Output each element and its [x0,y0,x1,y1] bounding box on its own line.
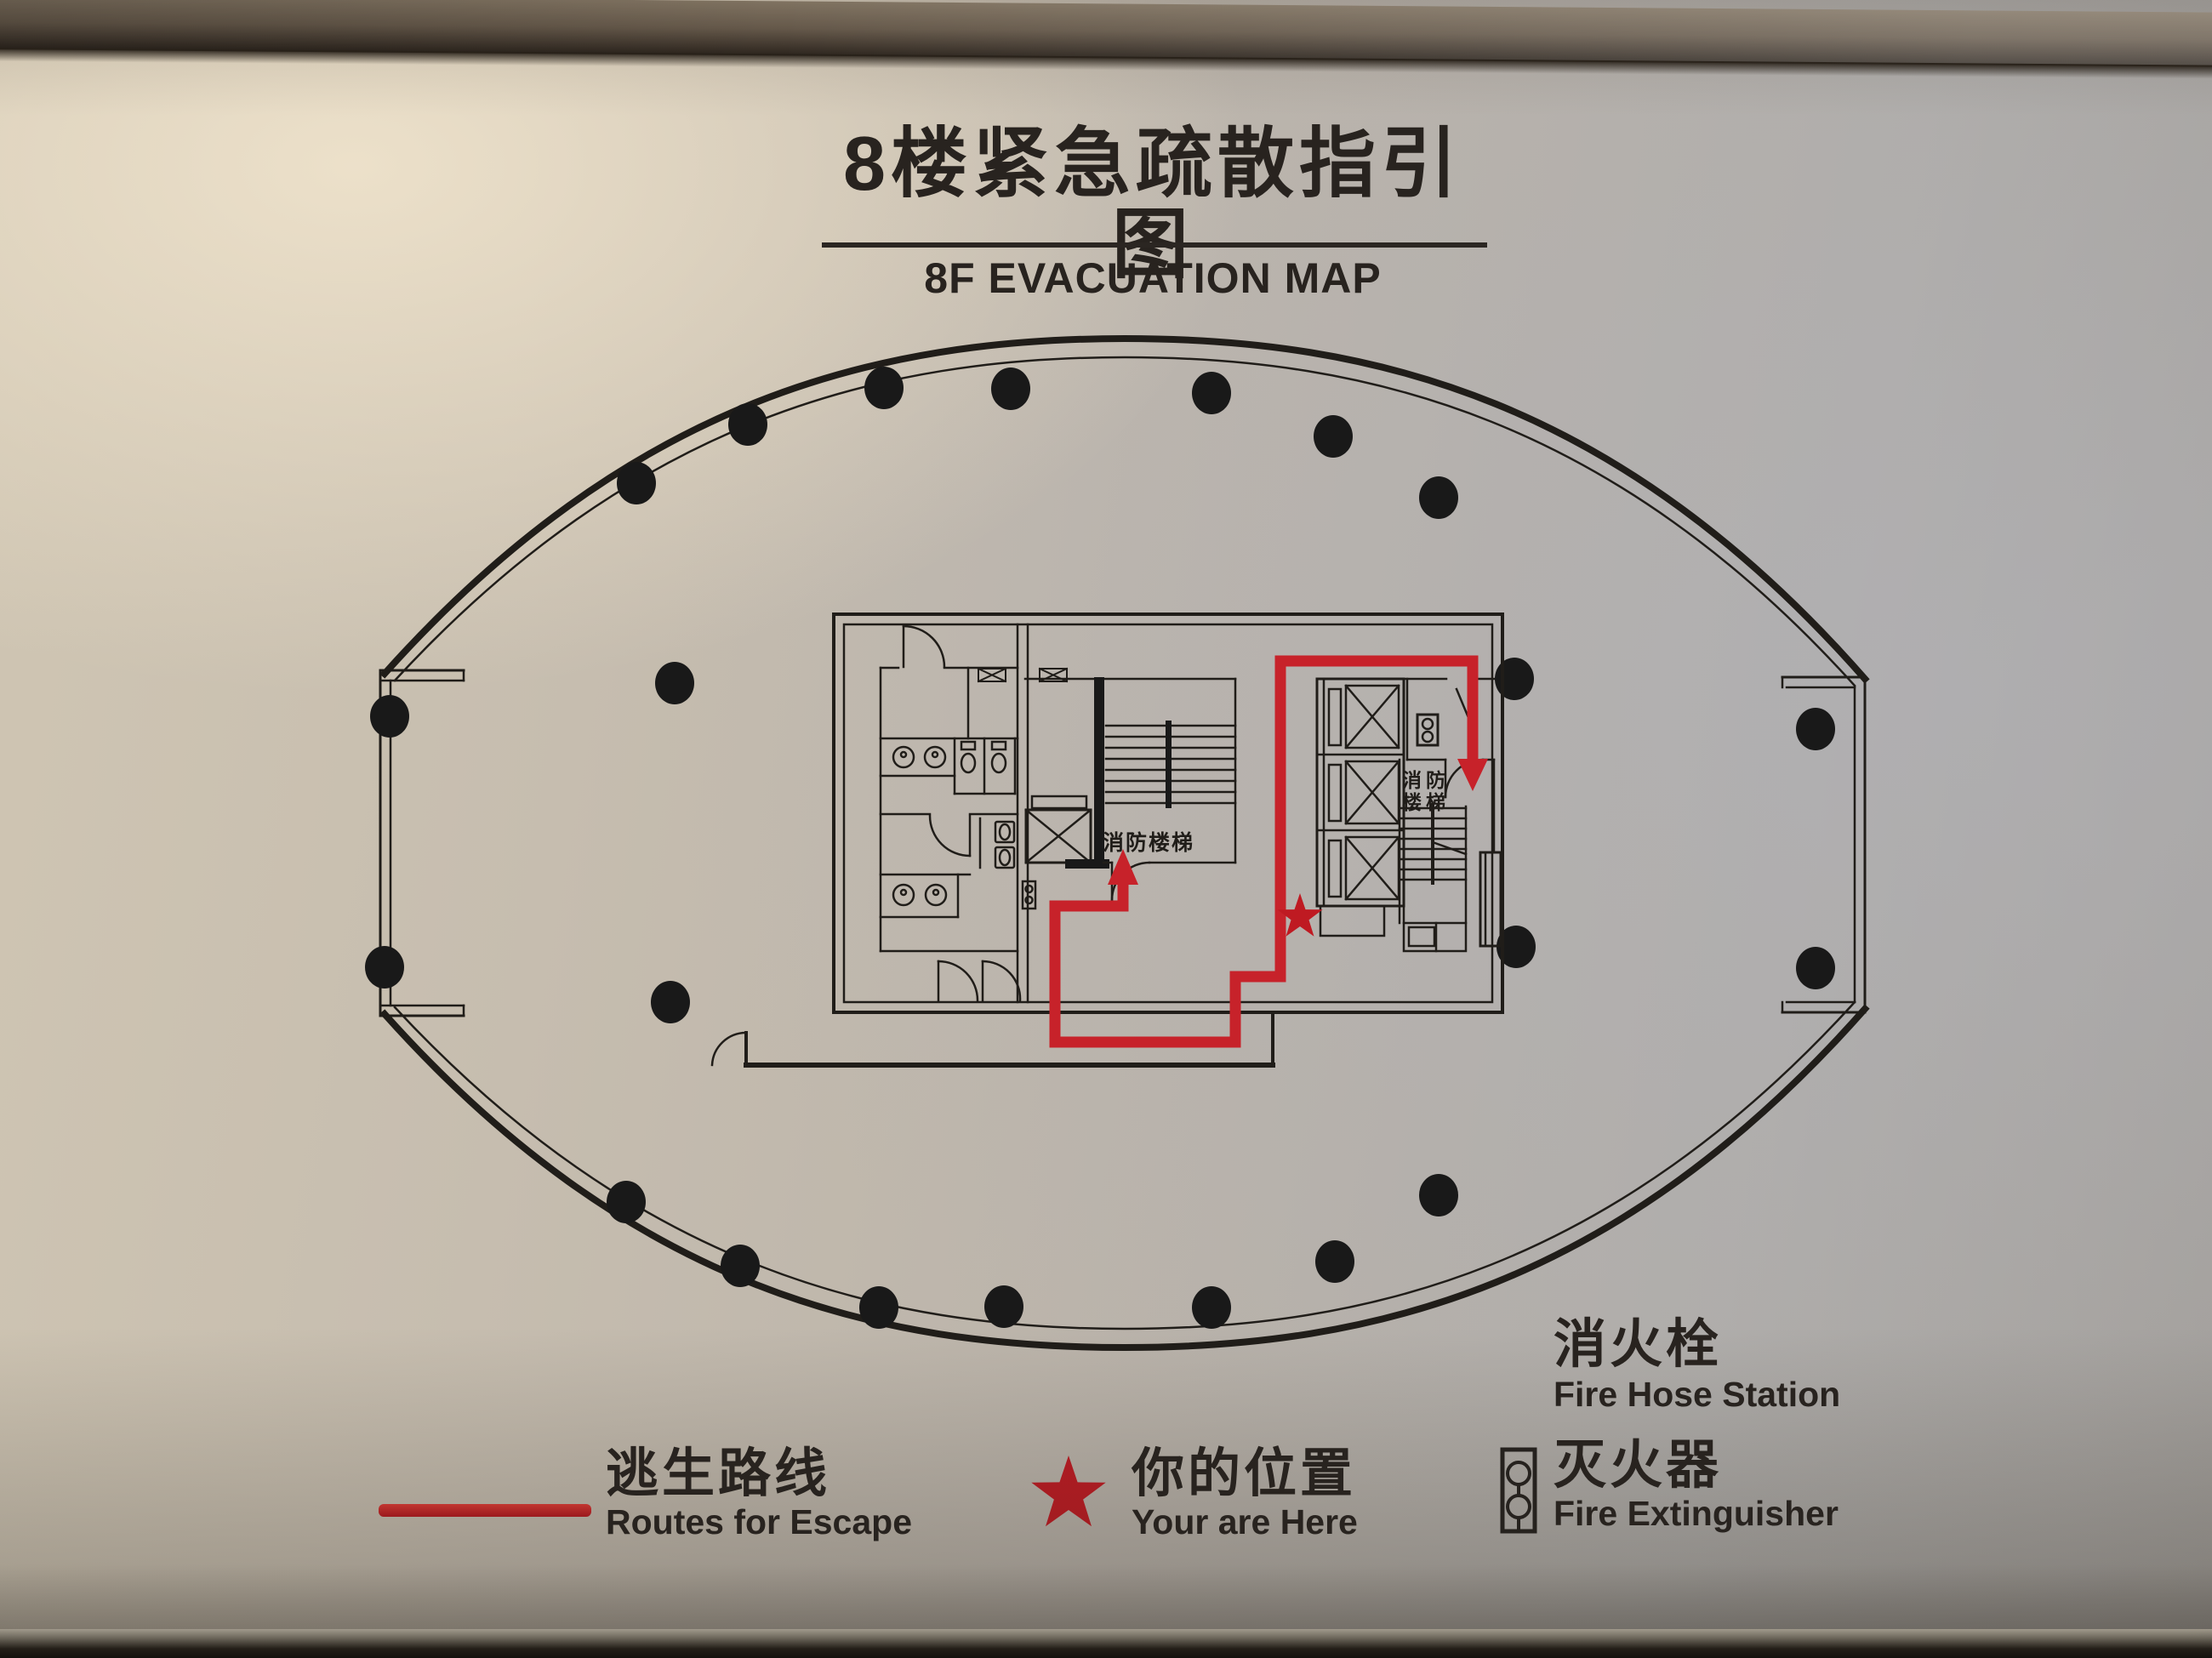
column-dot [370,695,409,738]
right-wing [1480,852,1501,946]
column-dot [1419,1174,1458,1216]
column-dot [721,1245,760,1287]
column-dot [859,1286,898,1329]
toilet [961,742,975,749]
door-arc [983,961,1020,1000]
toilet [992,742,1006,749]
elevator-bank [1317,679,1404,906]
column-dot [1796,947,1835,989]
metal-frame-bottom [0,1629,2212,1658]
elevator [1329,686,1399,748]
elevator [1329,837,1399,899]
column-dot [655,662,694,704]
legend-location-label-en: Your are Here [1132,1504,1358,1541]
column-dot [1315,1240,1354,1283]
column-dot [365,946,404,989]
column-dot [607,1181,646,1223]
fire-extinguisher-icon [1023,881,1035,909]
metal-frame-bottom-shadow [0,1564,2212,1632]
legend-route-label-en: Routes for Escape [606,1504,912,1541]
stair-label-right-top: 消防 [1402,769,1450,791]
stairs-left [1106,721,1235,808]
floor-plan: 消防楼梯 消防 楼梯 [0,0,2212,1658]
fire-hose-icon [1417,715,1438,745]
stair-label-left: 消防楼梯 [1103,831,1194,855]
column-dot [1796,708,1835,750]
stairs-right [1400,805,1466,883]
door-arc [938,961,978,1000]
column-dot [984,1285,1023,1328]
legend-hose-label-en: Fire Hose Station [1554,1376,1840,1413]
elevator [1329,761,1399,823]
column-dot [991,367,1030,410]
door-arc [712,1033,746,1065]
legend-route-label-zh: 逃生路线 [606,1446,830,1501]
legend-route-line [379,1504,591,1517]
column-dot [1192,1286,1231,1329]
door-arc [904,626,944,667]
evacuation-sign: 8楼紧急疏散指引图 8F EVACUATION MAP [0,0,2212,1658]
column-dot [1419,476,1458,519]
legend-extinguisher-label-zh: 灭火器 [1554,1438,1722,1493]
column-dot [728,403,767,446]
column-dot [1495,658,1534,700]
core-block: 消防楼梯 消防 楼梯 [712,614,1502,1065]
legend-extinguisher-label-en: Fire Extinguisher [1554,1496,1839,1532]
legend-hose-label-zh: 消火栓 [1554,1317,1722,1372]
route-arrow-down [1457,759,1488,791]
legend-star-icon [1031,1456,1105,1526]
column-dot [617,462,656,504]
door-arc [930,816,970,856]
column-dot [1314,415,1353,458]
stair-label-right-bottom: 楼梯 [1402,791,1450,813]
column-dot [651,981,690,1023]
column-dot [864,367,904,409]
legend-location-label-zh: 你的位置 [1132,1446,1356,1501]
column-dot [1192,372,1231,414]
legend-extinguisher-icon [1502,1450,1535,1531]
